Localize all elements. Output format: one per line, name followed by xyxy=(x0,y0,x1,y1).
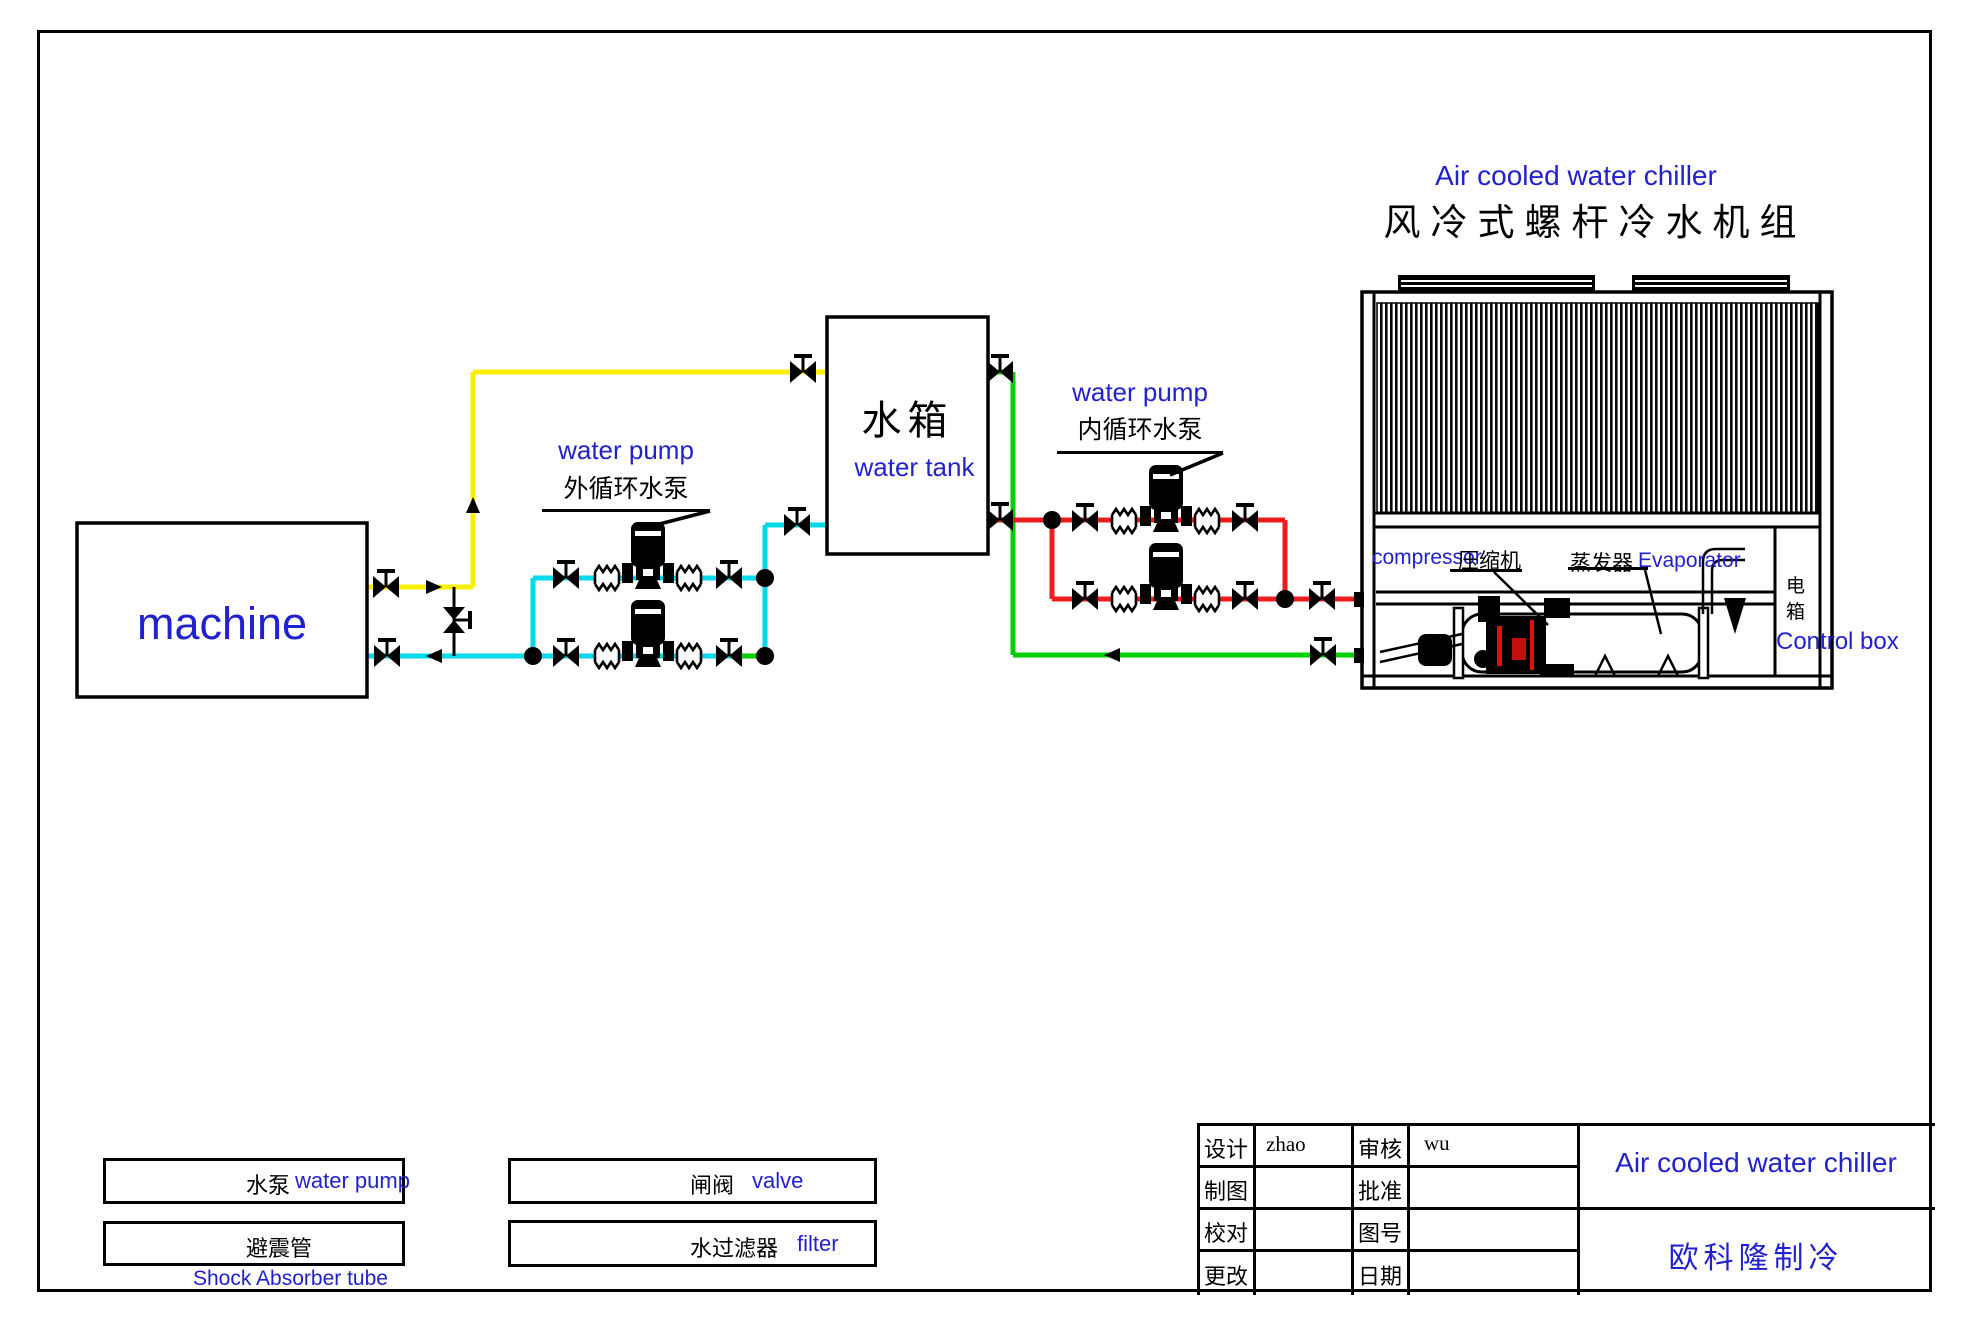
bypass-valve-icon xyxy=(443,607,470,633)
valve-icon xyxy=(987,356,1013,383)
external-pump-leader xyxy=(640,511,710,529)
shock-absorber-icon xyxy=(594,644,620,668)
shock-absorber-icon xyxy=(1194,587,1220,611)
shock-absorber-icon xyxy=(1111,587,1137,611)
valve-icon xyxy=(374,640,400,667)
pipe-junction xyxy=(1276,590,1294,608)
tb-product-name: Air cooled water chiller xyxy=(1577,1147,1935,1179)
cyan-return-pipe xyxy=(367,525,827,656)
legend-valve-en: valve xyxy=(752,1168,803,1194)
tb-design-value: zhao xyxy=(1266,1132,1306,1157)
external-pump-icon xyxy=(622,600,674,667)
tb-audit-value: wu xyxy=(1424,1131,1450,1156)
pipe-junction xyxy=(1043,511,1061,529)
fan-grille xyxy=(1398,275,1790,292)
internal-pump-label-zh: 内循环水泵 xyxy=(1057,410,1223,446)
flow-arrow-right xyxy=(426,580,442,594)
valve-icon xyxy=(1232,583,1258,610)
internal-pump-underline xyxy=(1057,451,1223,454)
valve-icon xyxy=(790,356,816,383)
valve-icon xyxy=(1309,583,1335,610)
external-pump-icon xyxy=(622,522,674,589)
flow-arrow-left xyxy=(426,649,442,663)
external-pump-label-zh: 外循环水泵 xyxy=(542,469,710,505)
shock-absorber-icon xyxy=(594,566,620,590)
tb-audit-label: 审核 xyxy=(1351,1132,1409,1164)
valve-icon xyxy=(1072,505,1098,532)
shock-absorber-icon xyxy=(676,566,702,590)
legend-pump-zh: 水泵 xyxy=(246,1168,290,1200)
shock-absorber-icon xyxy=(1194,509,1220,533)
tb-company-name: 欧科隆制冷 xyxy=(1577,1233,1935,1277)
internal-pump-icon xyxy=(1140,543,1192,610)
tb-date-label: 日期 xyxy=(1351,1259,1409,1291)
pipe-junction xyxy=(756,569,774,587)
evaporator-underline xyxy=(1568,567,1648,570)
valve-icon xyxy=(1232,505,1258,532)
flow-arrow-up xyxy=(466,497,480,513)
valve-icon xyxy=(716,562,742,589)
legend-shock-en: Shock Absorber tube xyxy=(193,1267,388,1291)
tb-approve-label: 批准 xyxy=(1351,1174,1409,1206)
valve-icon xyxy=(987,504,1013,531)
condenser-coil-hatch xyxy=(1377,303,1818,513)
external-pump-label-en: water pump xyxy=(542,435,710,466)
shock-absorber-icon xyxy=(676,644,702,668)
evaporator-label-zh: 蒸发器 xyxy=(1570,547,1633,577)
internal-pump-label-en: water pump xyxy=(1057,377,1223,408)
valve-icon xyxy=(373,571,399,598)
legend-shock-zh: 避震管 xyxy=(246,1231,312,1263)
internal-pump-leader xyxy=(1170,453,1223,475)
compressor-underline xyxy=(1450,569,1522,572)
valve-icon xyxy=(784,509,810,536)
valve-icon xyxy=(553,640,579,667)
pipe-junction xyxy=(524,647,542,665)
chiller-unit-drawing xyxy=(1354,275,1832,688)
valve-icon xyxy=(1310,639,1336,666)
water-tank-label-en: water tank xyxy=(834,452,995,483)
tb-proof-label: 校对 xyxy=(1197,1216,1255,1248)
legend-filter-en: filter xyxy=(797,1231,839,1257)
page-title-en: Air cooled water chiller xyxy=(1408,160,1744,192)
control-box-label-en: Control box xyxy=(1776,628,1899,656)
legend-pump-en: water pump xyxy=(295,1168,410,1194)
control-box-label-zh: 电箱 xyxy=(1786,574,1810,625)
flow-arrow-left xyxy=(1104,648,1120,662)
pipe-junction xyxy=(756,647,774,665)
evaporator-label-en: Evaporator xyxy=(1638,549,1741,573)
tb-change-label: 更改 xyxy=(1197,1259,1255,1291)
valve-icon xyxy=(1072,583,1098,610)
tb-design-label: 设计 xyxy=(1197,1132,1255,1164)
page-title-zh: 风冷式螺杆冷水机组 xyxy=(1380,192,1810,246)
legend-filter-zh: 水过滤器 xyxy=(690,1231,778,1263)
machine-label: machine xyxy=(77,598,367,650)
shock-absorber-icon xyxy=(1111,509,1137,533)
schematic-canvas: Air cooled water chiller 风冷式螺杆冷水机组 machi… xyxy=(0,0,1965,1323)
valve-icon xyxy=(716,640,742,667)
internal-pump-icon xyxy=(1140,465,1192,532)
external-pump-underline xyxy=(542,509,710,512)
tb-draft-label: 制图 xyxy=(1197,1174,1255,1206)
tb-figno-label: 图号 xyxy=(1351,1216,1409,1248)
legend-valve-zh: 闸阀 xyxy=(690,1168,734,1200)
valve-icon xyxy=(553,562,579,589)
water-tank-label-zh: 水箱 xyxy=(827,388,988,446)
